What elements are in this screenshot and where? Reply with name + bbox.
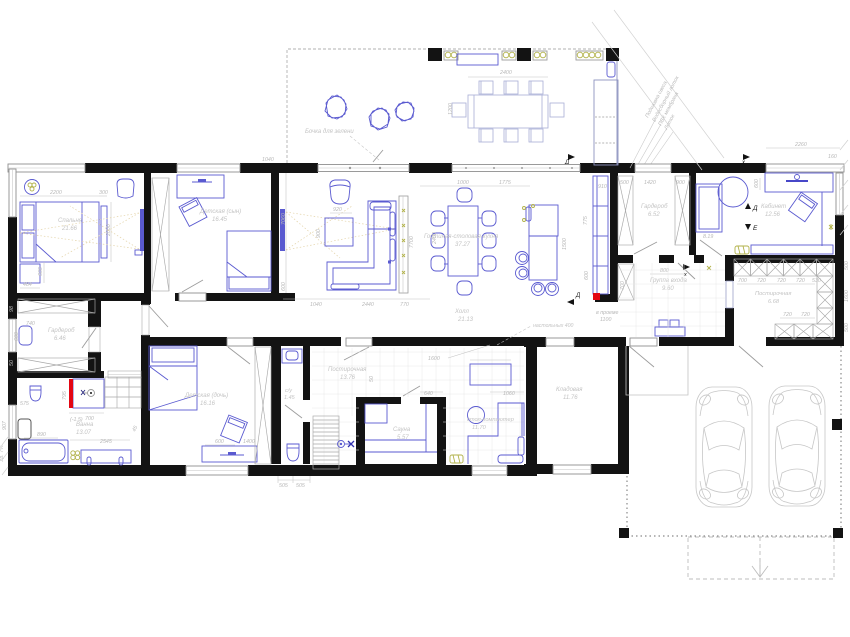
svg-text:600: 600: [38, 267, 44, 276]
svg-text:13.76: 13.76: [340, 375, 356, 381]
svg-text:1000: 1000: [457, 180, 469, 186]
svg-text:6.46: 6.46: [54, 336, 66, 342]
svg-text:530: 530: [812, 278, 821, 284]
svg-text:Д: Д: [575, 293, 581, 299]
svg-text:910: 910: [598, 184, 607, 190]
svg-text:21.13: 21.13: [457, 317, 474, 323]
svg-text:Группа входа: Группа входа: [650, 278, 687, 284]
svg-text:700: 700: [738, 278, 747, 284]
svg-text:Детская (сын): Детская (сын): [199, 209, 241, 215]
svg-text:720: 720: [801, 312, 810, 318]
svg-text:500: 500: [844, 323, 850, 332]
svg-text:505: 505: [279, 483, 288, 489]
svg-text:775: 775: [583, 216, 589, 225]
svg-text:х: х: [683, 272, 687, 278]
svg-text:795: 795: [62, 391, 68, 400]
svg-text:Постирочная: Постирочная: [755, 291, 791, 297]
svg-text:Детская (дочь): Детская (дочь): [184, 393, 228, 399]
svg-text:Постирочная: Постирочная: [328, 367, 367, 373]
svg-text:600: 600: [584, 271, 590, 280]
svg-text:2400: 2400: [499, 70, 512, 76]
svg-text:484: 484: [23, 282, 32, 288]
svg-text:600: 600: [14, 332, 20, 341]
svg-text:7700: 7700: [409, 236, 415, 248]
svg-text:16.16: 16.16: [200, 401, 216, 407]
svg-text:98: 98: [9, 306, 15, 312]
svg-text:16.45: 16.45: [212, 217, 228, 223]
svg-text:720: 720: [796, 278, 805, 284]
svg-text:770: 770: [400, 302, 409, 308]
svg-text:800: 800: [660, 268, 669, 274]
svg-text:1500: 1500: [562, 238, 568, 250]
svg-text:2440: 2440: [361, 302, 374, 308]
svg-text:50: 50: [369, 376, 375, 382]
svg-text:Гардероб: Гардероб: [48, 328, 75, 334]
svg-text:11.70: 11.70: [472, 425, 487, 431]
svg-text:Холл: Холл: [454, 309, 469, 315]
svg-text:Д: Д: [752, 205, 758, 212]
svg-text:600: 600: [754, 179, 760, 188]
svg-text:5.57: 5.57: [397, 435, 409, 441]
svg-text:50: 50: [9, 360, 15, 366]
svg-text:1600: 1600: [844, 290, 850, 302]
svg-text:Гардероб: Гардероб: [641, 204, 668, 210]
svg-text:1.45: 1.45: [284, 395, 296, 401]
svg-text:300: 300: [99, 190, 108, 196]
svg-text:1400: 1400: [243, 439, 255, 445]
svg-text:1200: 1200: [448, 103, 454, 115]
svg-text:1600: 1600: [428, 356, 440, 362]
svg-text:720: 720: [783, 312, 792, 318]
svg-text:575: 575: [20, 401, 29, 407]
svg-text:8.19: 8.19: [703, 234, 713, 240]
svg-text:6.52: 6.52: [648, 212, 660, 218]
svg-text:1100: 1100: [600, 317, 611, 323]
svg-text:907: 907: [2, 420, 8, 430]
svg-text:37.27: 37.27: [455, 242, 471, 248]
svg-text:890: 890: [37, 432, 46, 438]
svg-text:900: 900: [316, 229, 322, 238]
svg-text:настольных 400: настольных 400: [533, 323, 573, 329]
svg-text:500: 500: [620, 180, 629, 186]
svg-text:Кабинет: Кабинет: [761, 204, 786, 210]
svg-text:505: 505: [296, 483, 305, 489]
svg-text:Кладовая: Кладовая: [556, 387, 583, 393]
svg-text:600: 600: [215, 439, 224, 445]
svg-text:Бочка для зелени: Бочка для зелени: [305, 129, 354, 135]
svg-text:1040: 1040: [310, 302, 322, 308]
svg-text:1420: 1420: [644, 180, 656, 186]
svg-text:2400: 2400: [432, 232, 438, 245]
svg-text:6.68: 6.68: [768, 299, 780, 305]
svg-text:1040: 1040: [262, 157, 274, 163]
svg-text:Сауна: Сауна: [393, 427, 411, 433]
svg-text:стол-компьютер: стол-компьютер: [467, 417, 514, 423]
svg-text:900: 900: [676, 180, 685, 186]
svg-text:500: 500: [844, 261, 850, 270]
svg-text:Ванна: Ванна: [76, 422, 94, 428]
svg-text:13.07: 13.07: [76, 430, 92, 436]
svg-text:700: 700: [620, 281, 626, 290]
svg-text:Е: Е: [753, 225, 758, 232]
svg-text:920: 920: [333, 207, 342, 213]
svg-text:1775: 1775: [499, 180, 511, 186]
svg-text:21.66: 21.66: [61, 226, 78, 232]
svg-text:12.56: 12.56: [765, 212, 781, 218]
svg-text:в проеме: в проеме: [596, 310, 619, 316]
svg-text:2260: 2260: [794, 142, 807, 148]
svg-text:2200: 2200: [49, 190, 62, 196]
svg-text:11.76: 11.76: [563, 395, 578, 401]
svg-text:740: 740: [26, 321, 35, 327]
svg-text:720: 720: [757, 278, 766, 284]
svg-text:160: 160: [828, 154, 837, 160]
svg-text:720: 720: [777, 278, 786, 284]
